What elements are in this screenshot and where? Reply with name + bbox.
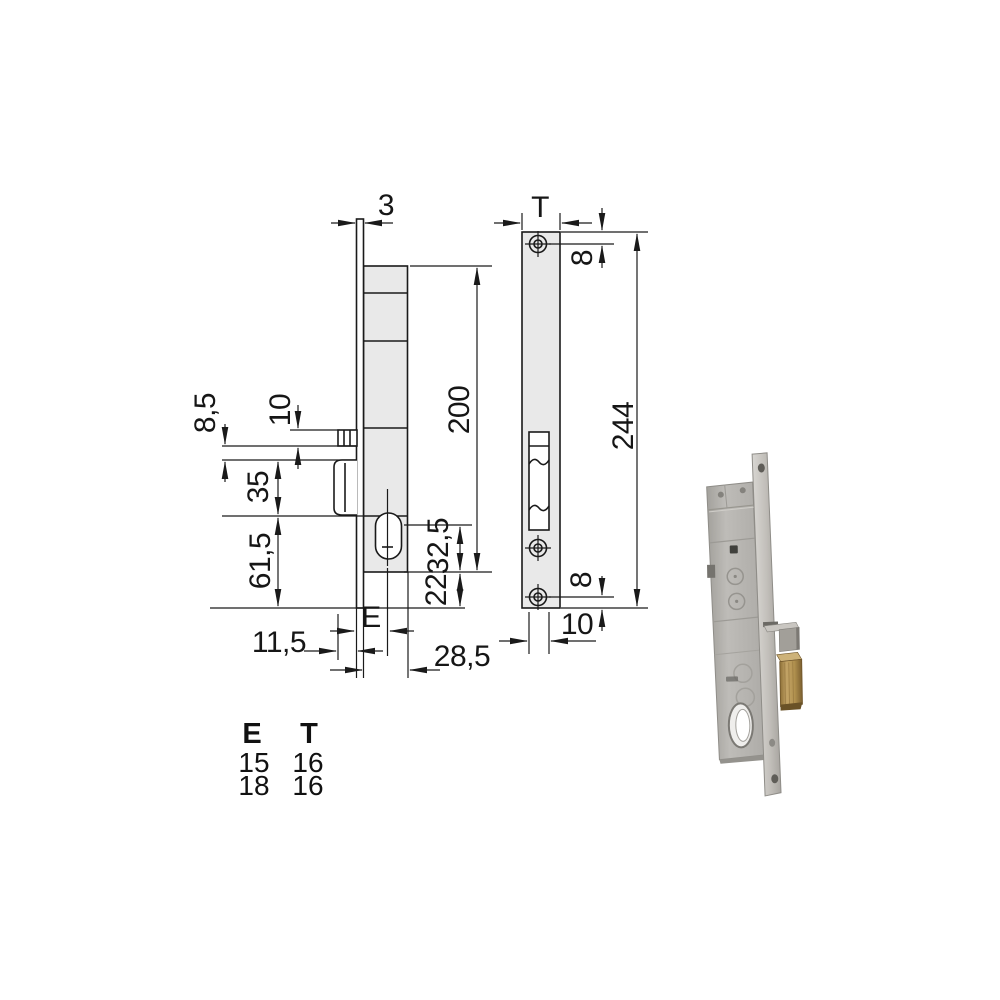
table-cell-t2: 16 bbox=[292, 770, 323, 801]
product-photo bbox=[705, 452, 804, 797]
dim-cylinder-offset: 32,5 bbox=[422, 518, 455, 574]
table-header-t: T bbox=[300, 718, 318, 750]
dim-screw-edge-offset: 10 bbox=[561, 608, 593, 641]
latch-bolt-side bbox=[338, 430, 357, 446]
dim-mid-section: 35 bbox=[242, 471, 275, 503]
dim-latch-lip: 8,5 bbox=[189, 393, 222, 433]
dim-lower-section: 61,5 bbox=[244, 533, 277, 589]
lock-technical-drawing: 3 200 8,5 10 35 61,5 32,5 22 E bbox=[0, 0, 1000, 1000]
photo-edge-notch bbox=[707, 565, 715, 578]
dim-bottom-offset: 22 bbox=[420, 574, 453, 606]
dim-faceplate-height: 244 bbox=[607, 402, 640, 451]
dim-backset-label: E bbox=[361, 601, 381, 634]
front-view-drawing: T 8 244 8 10 bbox=[494, 191, 648, 654]
photo-brand-stamp bbox=[726, 676, 738, 681]
dim-body-height: 200 bbox=[443, 386, 476, 435]
table-header-e: E bbox=[242, 718, 261, 750]
dim-body-depth: 28,5 bbox=[434, 640, 490, 673]
photo-brass-bolt bbox=[777, 652, 803, 710]
dim-plate-thickness: 3 bbox=[378, 189, 394, 222]
dim-latch-height: 10 bbox=[264, 394, 297, 426]
catalog-page: 3 200 8,5 10 35 61,5 32,5 22 E bbox=[0, 0, 1000, 1000]
cylinder-hole bbox=[376, 513, 402, 559]
faceplate-side bbox=[357, 219, 364, 608]
dim-bottom-screw-offset: 8 bbox=[565, 572, 598, 588]
dim-top-screw-offset: 8 bbox=[566, 250, 599, 266]
dim-faceplate-width-label: T bbox=[531, 191, 549, 224]
spec-table: E T 15 16 18 16 bbox=[238, 718, 323, 801]
photo-square-hole bbox=[730, 545, 738, 553]
dim-latch-protrusion: 11,5 bbox=[252, 626, 306, 659]
side-view-drawing: 3 200 8,5 10 35 61,5 32,5 22 E bbox=[189, 189, 492, 678]
table-cell-e2: 18 bbox=[238, 770, 269, 801]
